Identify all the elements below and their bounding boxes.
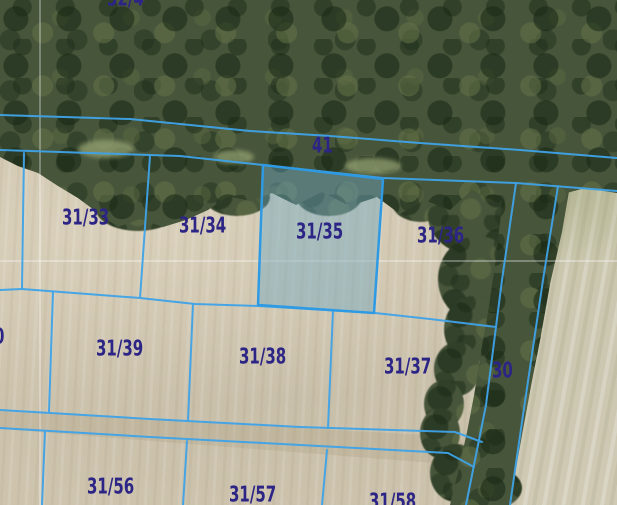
boundary-3140-3139: [49, 292, 53, 412]
boundary-left-of-3133: [22, 153, 24, 288]
boundary-3138-3137: [328, 310, 333, 428]
boundary-3157-3158: [322, 450, 327, 505]
boundary-strip30-right: [510, 186, 558, 505]
boundary-strip30-left: [466, 183, 516, 505]
boundary-3156-3157: [183, 441, 187, 505]
aerial-parcel-map[interactable]: 32/44131/3331/3431/3531/3630031/3931/383…: [0, 0, 617, 505]
boundary-track-bottom: [0, 428, 474, 467]
boundary-3133-3134: [140, 156, 150, 298]
boundary-left-of-3156: [42, 431, 45, 505]
boundary-row1-row2: [0, 289, 496, 327]
boundary-road41-top: [0, 115, 617, 158]
selected-parcel-31-35[interactable]: [258, 165, 383, 313]
boundary-3139-3138: [188, 304, 193, 421]
boundary-track-top: [0, 410, 482, 442]
boundary-overlay: [0, 0, 617, 505]
